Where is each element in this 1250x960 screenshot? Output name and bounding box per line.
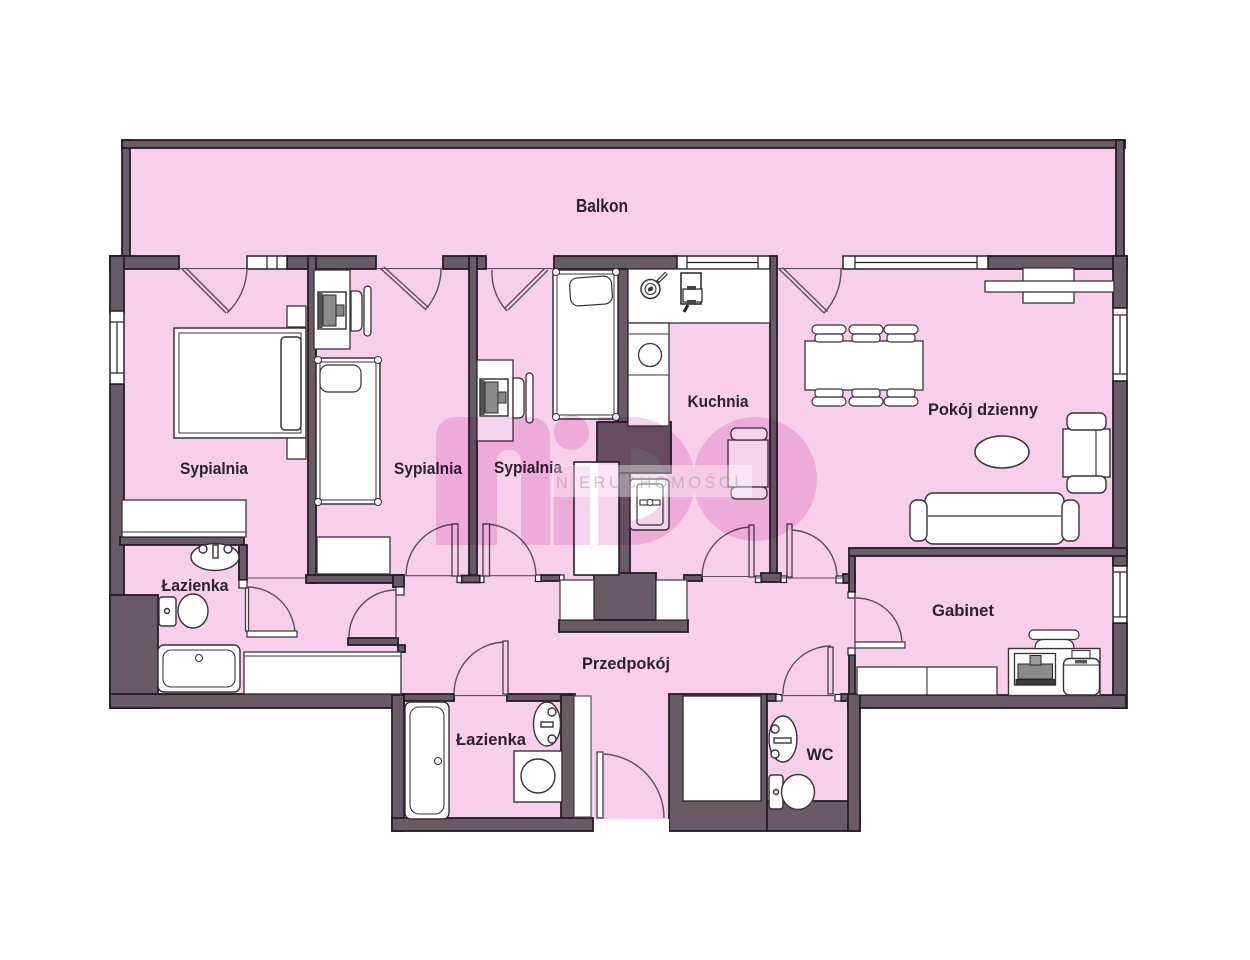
svg-text:Gabinet: Gabinet — [932, 601, 994, 620]
svg-text:NIERUCHOMOŚCI: NIERUCHOMOŚCI — [556, 473, 742, 492]
svg-text:Łazienka: Łazienka — [456, 730, 527, 749]
svg-text:Łazienka: Łazienka — [162, 576, 230, 595]
svg-text:Balkon: Balkon — [576, 196, 628, 216]
svg-text:Sypialnia: Sypialnia — [180, 459, 248, 478]
svg-text:WC: WC — [807, 745, 834, 764]
svg-text:Przedpokój: Przedpokój — [582, 654, 670, 673]
svg-text:Pokój dzienny: Pokój dzienny — [928, 400, 1039, 419]
svg-text:Kuchnia: Kuchnia — [688, 392, 749, 411]
